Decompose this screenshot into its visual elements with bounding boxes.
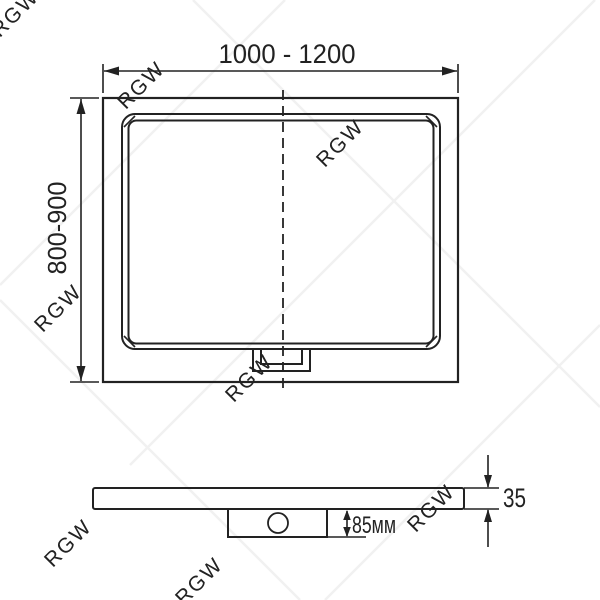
tray-outer-edge <box>103 98 458 382</box>
drain-outlet-circle <box>268 513 288 533</box>
technical-drawing: RGW RGW RGW RGW RGW RGW RGW RGW <box>0 0 600 600</box>
drawing-canvas: RGW RGW RGW RGW RGW RGW RGW RGW <box>0 0 600 600</box>
tray-profile <box>93 488 464 509</box>
arrowhead-down <box>343 527 351 537</box>
arrowhead-up <box>343 510 351 520</box>
drain-depth-label: 85мм <box>352 512 396 539</box>
watermark-diagonal-line <box>325 325 600 600</box>
watermark-text: RGW <box>171 553 228 600</box>
watermark-text: RGW <box>30 280 87 337</box>
arrowhead-down <box>484 475 492 488</box>
top-view: 1000 - 1200 800-900 <box>42 39 458 394</box>
thickness-dimension <box>464 455 499 547</box>
arrowhead-right <box>442 67 457 76</box>
watermark-text: RGW <box>40 515 97 572</box>
watermark-text: RGW <box>221 350 278 407</box>
arrowhead-up <box>484 509 492 522</box>
arrowhead-up <box>77 99 86 114</box>
height-dimension <box>70 98 99 382</box>
watermark-text: RGW <box>0 0 44 42</box>
watermark-diagonal-line <box>130 0 595 465</box>
width-dimension-label: 1000 - 1200 <box>219 39 356 69</box>
arrowhead-left <box>104 67 119 76</box>
basin-rim-inner <box>129 121 434 344</box>
thickness-label: 35 <box>503 483 526 513</box>
side-view: 85мм 35 <box>93 455 526 547</box>
watermark-text: RGW <box>312 115 369 172</box>
height-dimension-label: 800-900 <box>42 182 72 275</box>
watermark-text: RGW <box>113 57 170 114</box>
